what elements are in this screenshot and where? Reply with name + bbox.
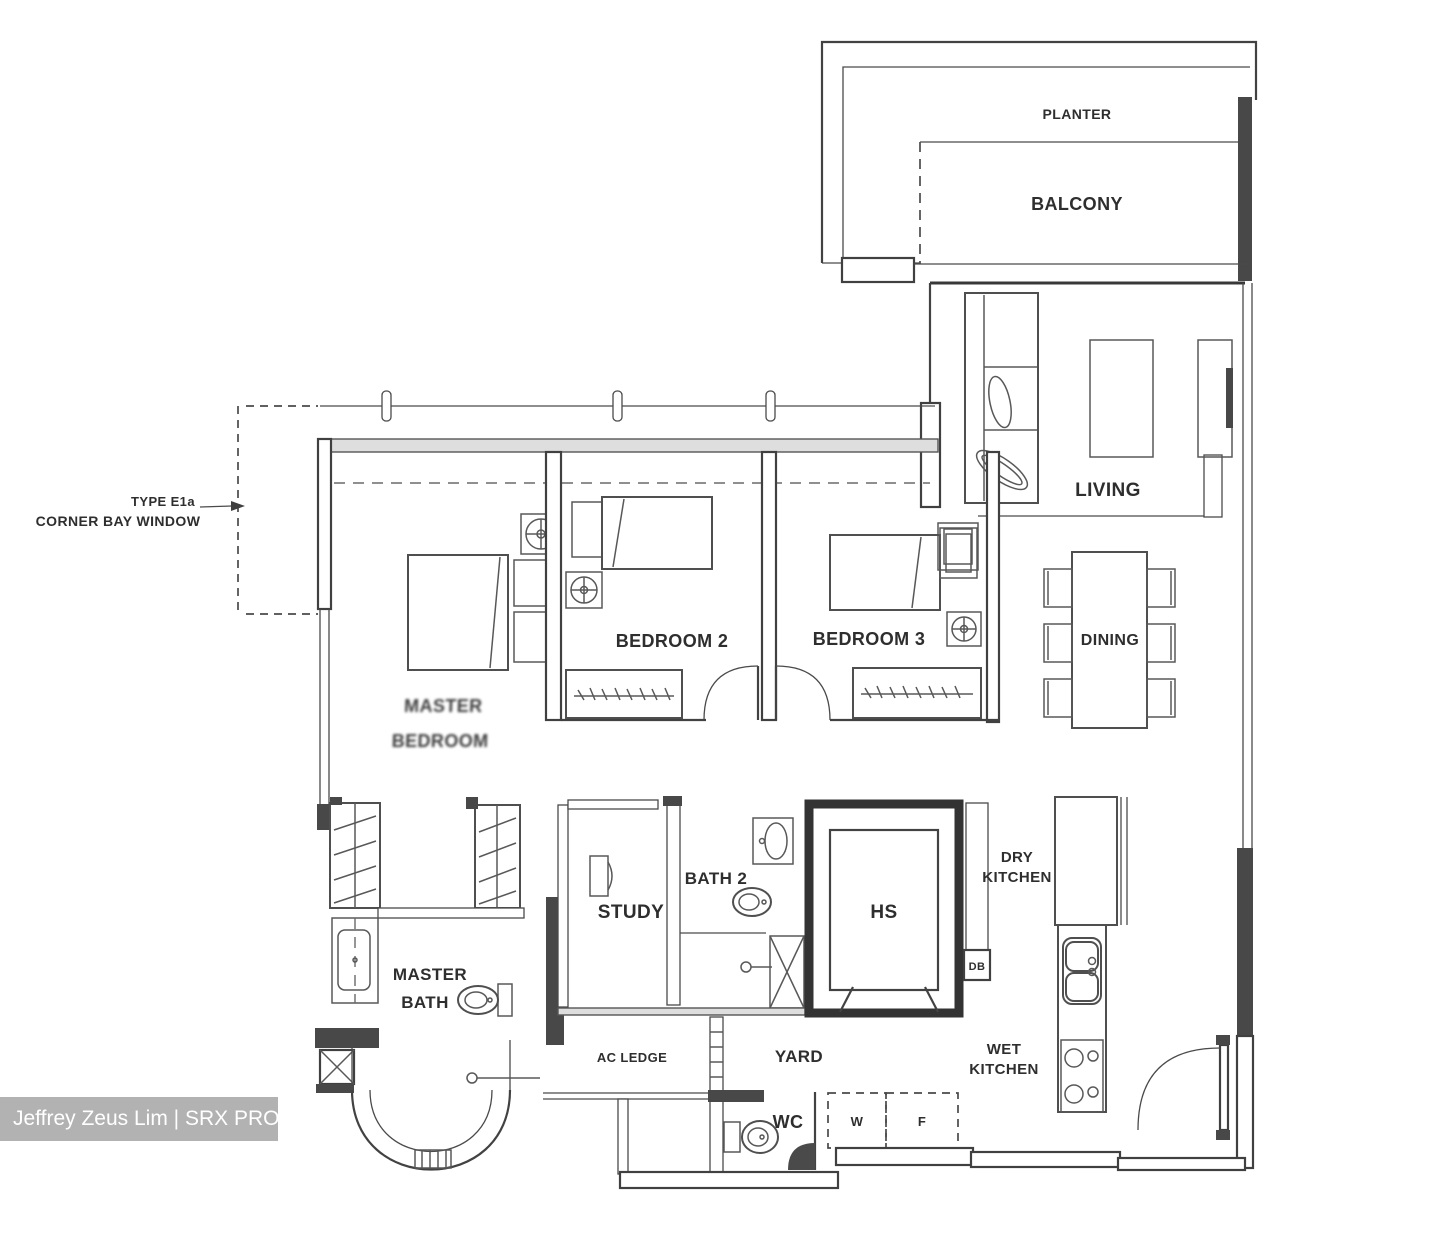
dry-kitchen-label: DRY	[1001, 849, 1033, 866]
room-dry-kitchen: DRY KITCHEN	[982, 797, 1127, 925]
master-bath-label: MASTER	[393, 965, 467, 984]
callout-type-label: TYPE E1a	[131, 494, 195, 509]
sofa-pillow	[985, 374, 1015, 429]
room-dining: DINING	[1044, 552, 1175, 728]
ceiling-fan-icon	[947, 612, 981, 646]
door-swing-arc	[1138, 1048, 1220, 1130]
room-living: LIVING	[921, 283, 1233, 570]
stove	[1061, 1040, 1103, 1112]
right-exterior-wall	[1237, 283, 1253, 1168]
door-handle	[467, 1073, 477, 1083]
bay-window-band	[320, 391, 938, 483]
curved-bay-outer	[352, 1090, 510, 1170]
wardrobe-closets	[330, 797, 520, 908]
svg-text:MASTER: MASTER	[404, 696, 483, 716]
planter-label: PLANTER	[1043, 106, 1112, 122]
bedroom3-label: BEDROOM 3	[813, 629, 926, 649]
bedroom2-label: BEDROOM 2	[616, 631, 729, 651]
double-sink	[1063, 938, 1101, 1004]
ceiling-fan-icon	[566, 572, 602, 608]
ac-ledge-label: AC LEDGE	[597, 1050, 667, 1065]
room-hs: HS	[809, 804, 959, 1013]
door-handle	[741, 962, 751, 972]
wall-br2-br3	[762, 452, 776, 720]
room-study: STUDY	[558, 796, 682, 1007]
room-bath2: BATH 2	[680, 818, 804, 1008]
toilet-icon	[724, 1121, 778, 1153]
master-bedroom-label: MASTER BEDROOM	[391, 696, 490, 751]
bed	[830, 535, 940, 610]
curved-bay-inner	[370, 1090, 492, 1152]
bath2-label: BATH 2	[685, 869, 748, 888]
door-leaf	[1220, 1045, 1228, 1130]
fridge-label: F	[918, 1114, 926, 1129]
sofa	[965, 293, 1038, 503]
wall-br3-dining	[987, 452, 999, 722]
corner-bay-window-callout: TYPE E1a CORNER BAY WINDOW	[36, 406, 318, 614]
study-label: STUDY	[598, 902, 664, 923]
balcony-right-wall	[1238, 97, 1252, 281]
wc-top-wall	[708, 1090, 764, 1102]
washer-label: W	[851, 1114, 864, 1129]
appliance-bays: W F	[828, 1093, 958, 1148]
window-tick	[766, 391, 775, 421]
room-master-bath: MASTER BATH	[315, 897, 564, 1170]
planter-balcony: PLANTER BALCONY	[822, 42, 1256, 283]
dining-label: DINING	[1081, 632, 1139, 649]
wc-label: WC	[773, 1112, 804, 1132]
kitchen-counter	[1055, 797, 1117, 925]
window-tick	[613, 391, 622, 421]
hs-label: HS	[870, 902, 897, 923]
toilet-icon	[733, 888, 771, 916]
tv	[1226, 368, 1233, 428]
wet-kitchen-label: WET	[987, 1041, 1022, 1058]
shower-stall	[770, 936, 804, 1008]
room-bedroom2: BEDROOM 2	[566, 497, 758, 720]
balcony-label: BALCONY	[1031, 194, 1123, 214]
wall-mbr-br2	[546, 452, 561, 720]
living-label: LIVING	[1075, 480, 1141, 501]
svg-text:BEDROOM: BEDROOM	[391, 731, 488, 751]
floor-plan-page: PLANTER BALCONY LIVING	[0, 0, 1440, 1241]
room-master-bedroom: MASTER BEDROOM	[391, 514, 561, 751]
wall-acledge	[558, 1008, 805, 1015]
wardrobe	[566, 670, 682, 718]
db-label: DB	[969, 961, 986, 973]
master-bath-label: BATH	[401, 993, 449, 1012]
floor-plan-drawing: PLANTER BALCONY LIVING	[0, 0, 1440, 1241]
study-chair	[590, 856, 608, 896]
sofa-pillow	[971, 444, 1033, 496]
ac-ledge: AC LEDGE	[543, 1050, 710, 1174]
left-exterior-wall	[317, 439, 331, 830]
callout-bay-window-label: CORNER BAY WINDOW	[36, 513, 201, 529]
window-tick	[382, 391, 391, 421]
entry-door	[1138, 1035, 1230, 1140]
watermark: Jeffrey Zeus Lim | SRX PROPERTY	[0, 1097, 278, 1141]
toilet-icon	[458, 984, 512, 1016]
wet-kitchen-label: KITCHEN	[969, 1061, 1038, 1078]
master-bed	[408, 555, 508, 670]
wardrobe	[853, 668, 981, 718]
door-swing-arc	[704, 666, 758, 720]
room-wc: WC	[708, 1017, 815, 1172]
dry-kitchen-label: KITCHEN	[982, 869, 1051, 886]
yard-label: YARD	[775, 1047, 823, 1066]
bedside-table	[572, 502, 602, 557]
planter-step-wall	[842, 258, 914, 282]
wc-door	[788, 1143, 815, 1170]
door-swing-arc	[776, 666, 830, 720]
coffee-table	[1090, 340, 1153, 457]
